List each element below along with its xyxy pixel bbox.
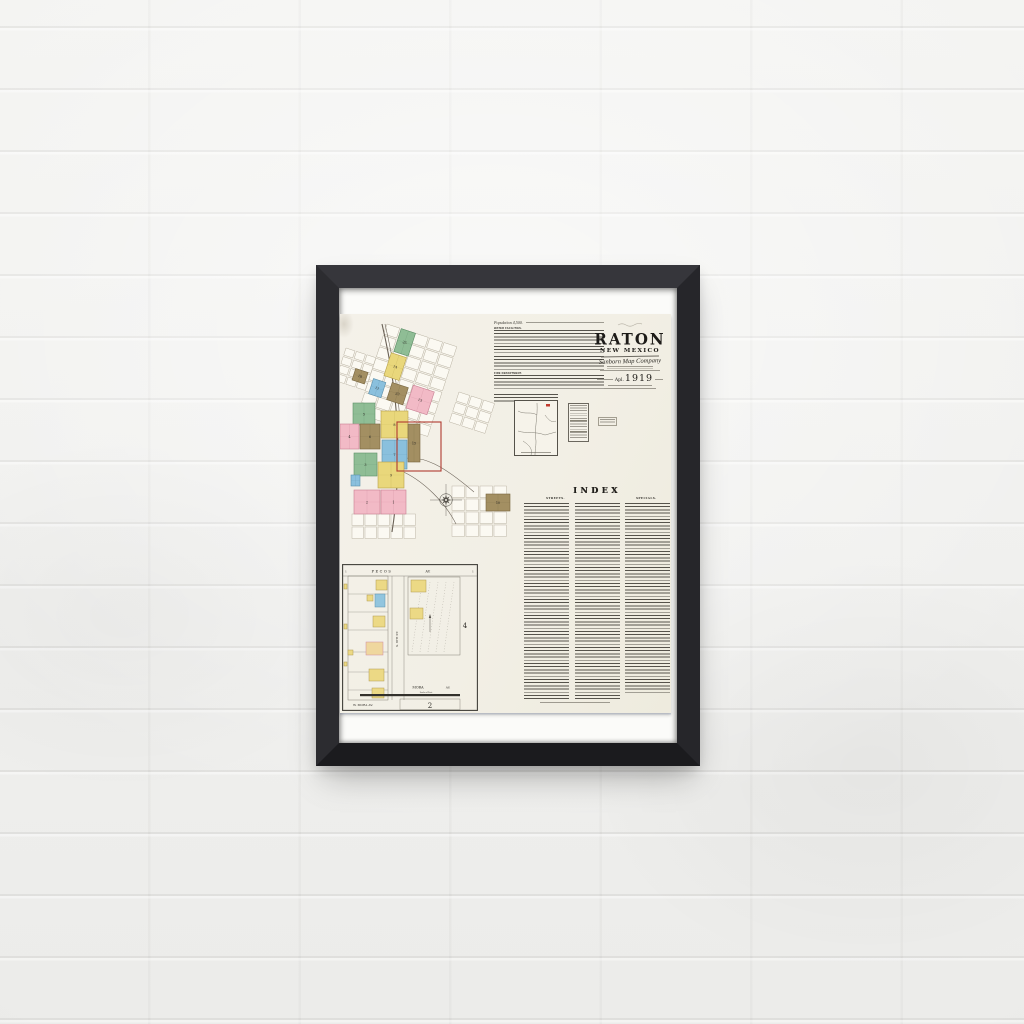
environs-caption-line: [521, 452, 550, 453]
stamp-box: [598, 417, 617, 426]
legend-box: [568, 403, 589, 442]
paragraph-lines: [494, 356, 604, 370]
date-prefix: Apl.: [615, 378, 624, 383]
fire-department-paragraph: FIRE DEPARTMENT.: [494, 372, 604, 391]
publisher-address-line: [607, 366, 653, 368]
legend-rows: [570, 405, 587, 421]
notes-block: Population 4,500. WATER FACILITIES. FIRE…: [494, 321, 604, 405]
paragraph-lines: [494, 330, 604, 353]
population-note: Population 4,500.: [494, 321, 604, 325]
detail-inset: PECOSAV.S. 6TH ST.MORAAV.Scale of Feet24…: [342, 564, 478, 711]
script-line: [655, 379, 663, 381]
index-column-streets-1: [524, 503, 569, 701]
date-year: 1919: [625, 374, 653, 384]
svg-text:S. 6TH ST.: S. 6TH ST.: [395, 631, 399, 647]
svg-text:AV.: AV.: [445, 686, 451, 690]
title-block: RATON NEW MEXICO Sanborn Map Company Apl…: [590, 314, 670, 390]
svg-text:10: 10: [496, 501, 500, 505]
svg-text:MORA: MORA: [412, 686, 424, 690]
index-section: INDEX STREETS. SPECIALS.: [524, 486, 670, 708]
svg-text:2: 2: [428, 702, 432, 710]
state-word: MEXICO: [624, 348, 660, 354]
copyright-line: [604, 388, 656, 390]
svg-text:AV.: AV.: [425, 570, 431, 574]
map-title-state: NEW MEXICO: [590, 348, 670, 354]
pencil-mark: [617, 322, 643, 327]
state-word: NEW: [600, 348, 620, 354]
svg-text:7: 7: [393, 453, 395, 457]
publisher-name: Sanborn Map Company: [590, 356, 670, 365]
index-column-streets-2: [575, 503, 620, 701]
svg-text:1: 1: [472, 570, 474, 574]
legend-rows: [570, 421, 587, 433]
index-footnote-line: [540, 702, 610, 704]
stamp-lines: [600, 419, 615, 424]
paragraph-lines: [494, 375, 604, 391]
legend-rows: [570, 432, 587, 439]
svg-text:W. MORA AV.: W. MORA AV.: [353, 703, 373, 707]
svg-text:5: 5: [363, 412, 365, 416]
environs-inset: [514, 400, 558, 456]
index-columns: [524, 503, 670, 701]
svg-text:Scale of Feet: Scale of Feet: [420, 691, 433, 694]
svg-text:1: 1: [392, 500, 394, 504]
map-sheet: 2514112313185846715392110 Population 4,5…: [340, 314, 671, 713]
svg-text:6: 6: [369, 435, 371, 439]
index-headers: STREETS. SPECIALS.: [524, 496, 670, 502]
svg-text:1: 1: [345, 570, 347, 574]
script-line: [597, 379, 613, 381]
index-column-specials: [625, 503, 670, 695]
date-row: Apl. 1919: [590, 374, 670, 384]
index-title: INDEX: [524, 486, 670, 494]
svg-text:2: 2: [366, 500, 368, 504]
svg-text:9: 9: [390, 473, 392, 477]
population-text: Population 4,500.: [494, 321, 523, 325]
picture-frame: 2514112313185846715392110 Population 4,5…: [316, 265, 700, 766]
map-title-city: RATON: [590, 331, 670, 347]
copyright-line: [608, 385, 652, 387]
environs-roads: [515, 401, 559, 457]
svg-text:15: 15: [412, 441, 416, 445]
svg-text:3: 3: [364, 463, 366, 467]
svg-text:4: 4: [463, 622, 468, 630]
notes-paragraph-2: [494, 356, 604, 370]
svg-text:PECOS: PECOS: [372, 570, 393, 574]
water-facilities-paragraph: WATER FACILITIES.: [494, 327, 604, 353]
svg-text:8: 8: [393, 423, 395, 427]
index-header-specials: SPECIALS.: [636, 496, 656, 500]
brick-wall: 2514112313185846715392110 Population 4,5…: [0, 0, 1024, 1024]
svg-text:4: 4: [348, 435, 350, 439]
index-header-streets: STREETS.: [546, 496, 565, 500]
matte: 2514112313185846715392110 Population 4,5…: [339, 288, 677, 743]
